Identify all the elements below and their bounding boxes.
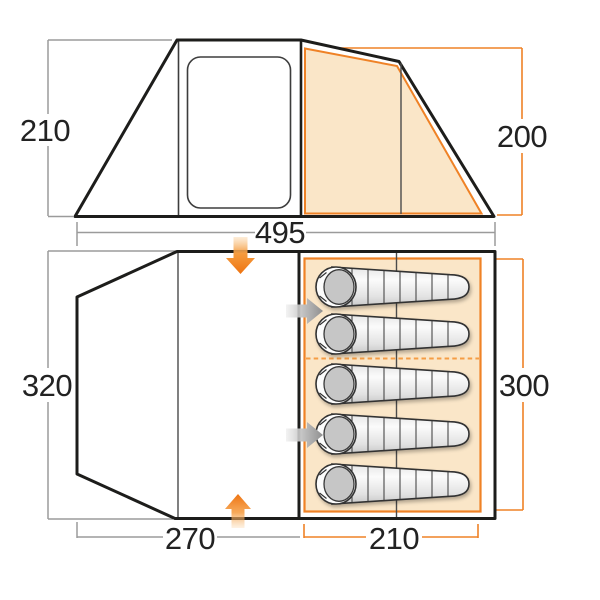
dim-label-sideview-height-left: 210 bbox=[20, 113, 70, 148]
floor-plan-view: 320 300 270 210 bbox=[22, 237, 549, 556]
sideview-door bbox=[188, 57, 291, 208]
dim-label-sideview-height-right: 200 bbox=[497, 119, 547, 154]
dim-label-floorplan-living-width: 270 bbox=[165, 521, 215, 556]
dim-label-floorplan-bedroom-width: 210 bbox=[369, 521, 419, 556]
sideview-bedroom-area bbox=[305, 49, 482, 214]
diagram-svg: 210 200 495 bbox=[0, 0, 600, 600]
dim-label-floorplan-height-left: 320 bbox=[22, 368, 72, 403]
tent-dimensions-diagram: 210 200 495 bbox=[0, 0, 600, 600]
dim-label-sideview-width: 495 bbox=[255, 215, 305, 250]
dim-label-floorplan-bedroom-depth: 300 bbox=[499, 368, 549, 403]
side-elevation-view: 210 200 495 bbox=[20, 40, 547, 250]
